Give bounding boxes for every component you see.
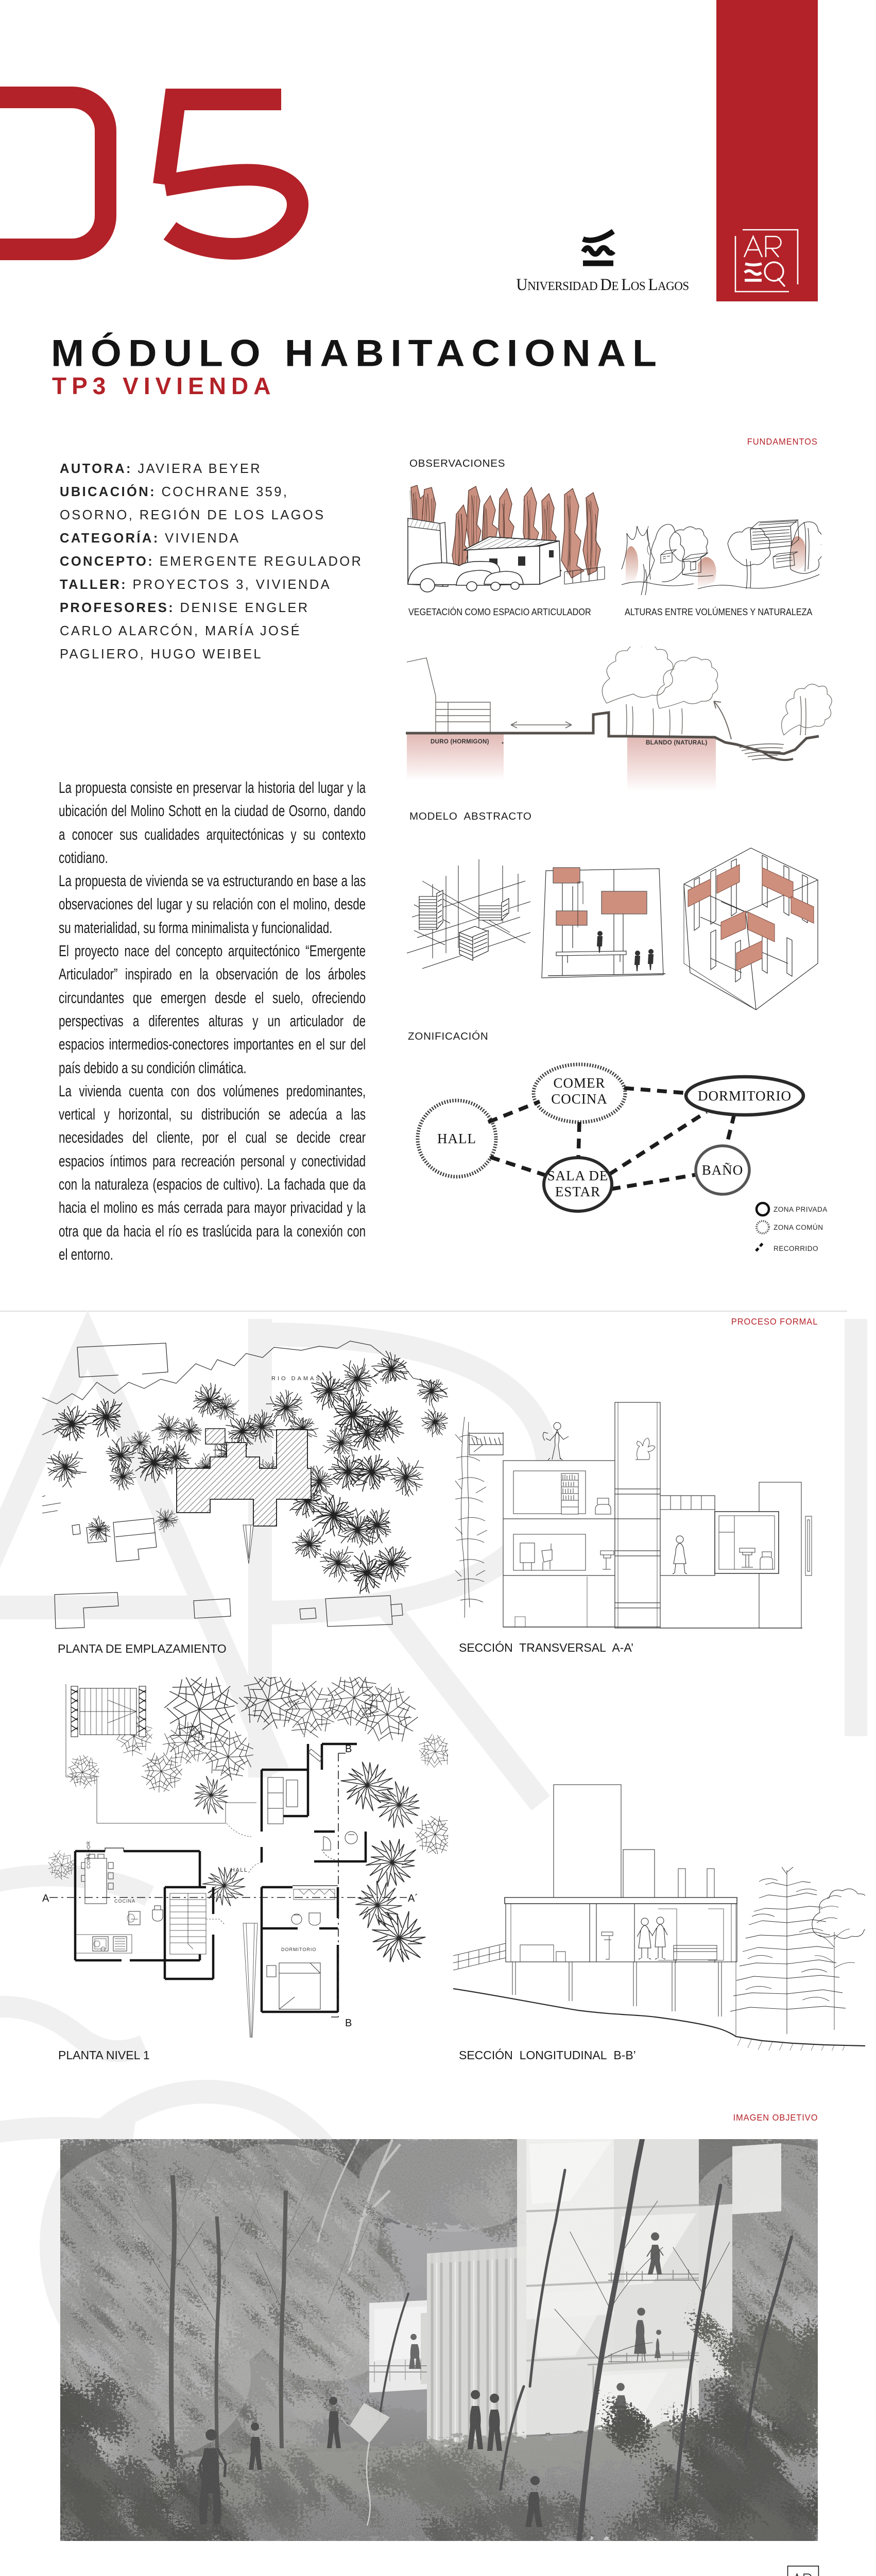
svg-text:DURO (HORMIGON): DURO (HORMIGON) <box>431 739 489 745</box>
svg-text:COMER: COMER <box>553 1075 605 1091</box>
svg-text:SALA DE: SALA DE <box>547 1168 609 1183</box>
svg-text:ESTAR: ESTAR <box>555 1184 600 1199</box>
svg-text:UNIVERSIDAD DE LOS LAGOS: UNIVERSIDAD DE LOS LAGOS <box>516 275 689 294</box>
svg-text:COCINA: COCINA <box>114 1899 135 1904</box>
svg-text:DORMITORIO: DORMITORIO <box>698 1088 792 1104</box>
svg-text:RECORRIDO: RECORRIDO <box>774 1245 818 1252</box>
svg-text:COCINA: COCINA <box>551 1091 608 1107</box>
svg-text:BAÑO: BAÑO <box>702 1162 744 1178</box>
svg-text:COMEDOR: COMEDOR <box>86 1841 91 1869</box>
svg-text:HALL: HALL <box>231 1867 248 1873</box>
svg-text:ZONA PRIVADA: ZONA PRIVADA <box>774 1206 828 1213</box>
svg-text:B: B <box>345 1743 352 1755</box>
svg-text:RIO DAMAS: RIO DAMAS <box>271 1376 322 1382</box>
svg-text:ZONA COMÚN: ZONA COMÚN <box>774 1224 823 1231</box>
svg-text:DORMITORIO: DORMITORIO <box>281 1947 316 1952</box>
svg-text:HALL: HALL <box>437 1131 476 1146</box>
svg-text:A´: A´ <box>408 1893 418 1904</box>
svg-text:BLANDO (NATURAL): BLANDO (NATURAL) <box>646 740 708 746</box>
svg-text:A: A <box>42 1893 49 1904</box>
svg-text:B: B <box>345 2018 352 2029</box>
